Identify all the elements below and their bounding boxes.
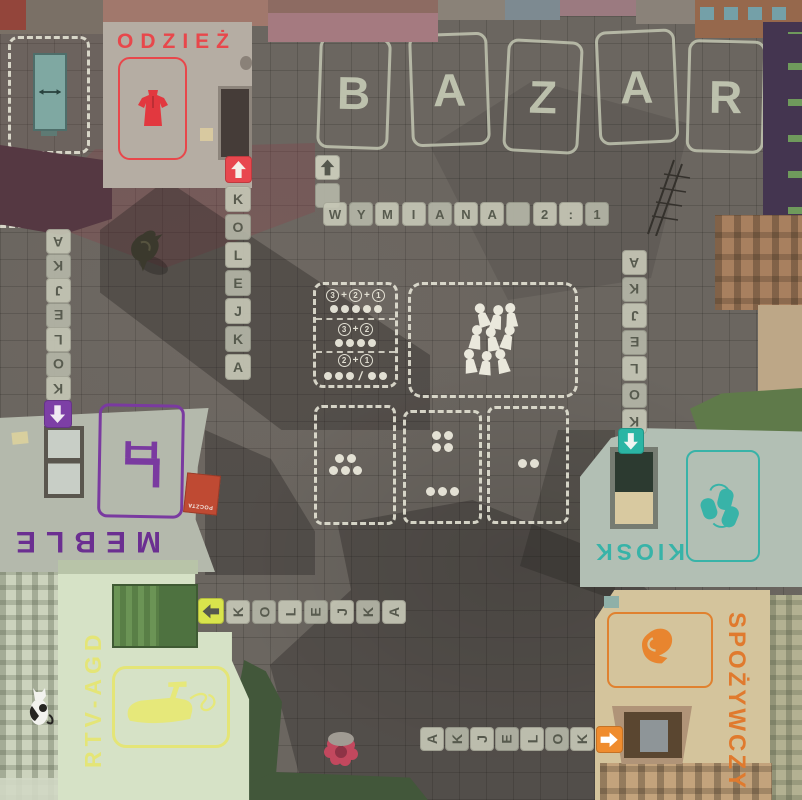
bazar-card: A — [408, 32, 491, 148]
queue-tile[interactable]: W — [323, 202, 347, 226]
wall-vent — [240, 56, 252, 70]
queue-tile[interactable]: A — [428, 202, 452, 226]
exchange-row: 3+2+1 — [316, 285, 395, 318]
cat-icon — [18, 682, 60, 732]
tile-letter: 2 — [541, 207, 548, 222]
queue-tile[interactable]: N — [454, 202, 478, 226]
tile-letter: K — [53, 381, 63, 397]
tile-letter: O — [233, 219, 244, 235]
tile-letter: J — [334, 608, 350, 616]
poczta-tile[interactable]: POCZTA — [183, 472, 221, 515]
tile-letter: E — [233, 275, 242, 291]
arrow-left-icon — [202, 602, 221, 620]
tile-letter: L — [54, 332, 63, 348]
queue-tile[interactable]: E — [495, 727, 519, 751]
tile-letter: 1 — [593, 207, 600, 222]
wardrobe-icon — [33, 53, 67, 131]
tile-letter: M — [382, 207, 393, 222]
dice-box[interactable] — [314, 405, 396, 525]
tile-letter: J — [474, 735, 490, 743]
bazar-card-letter: A — [432, 62, 466, 117]
tile-letter: O — [629, 387, 640, 403]
tile-letter: K — [449, 734, 465, 744]
tile-letter: J — [631, 308, 639, 324]
queue-tile[interactable]: J — [46, 278, 71, 303]
bazar-card: B — [316, 36, 392, 150]
queue-tile[interactable]: K — [570, 727, 594, 751]
chair-icon — [97, 403, 185, 518]
pip-cluster — [431, 429, 455, 453]
queue-tile[interactable]: K — [225, 326, 251, 352]
queue-tile[interactable]: J — [225, 298, 251, 324]
brick-windows — [700, 7, 796, 20]
fire-escape-ladder — [640, 158, 700, 236]
tile-letter: Y — [357, 207, 366, 222]
queue-tile[interactable]: A — [225, 354, 251, 380]
tile-letter: N — [461, 207, 470, 222]
queue-tile[interactable]: K — [225, 186, 251, 212]
spozywczy-door-glass — [640, 720, 668, 752]
rtv-roof-strip — [58, 560, 198, 574]
building-bottom-left — [0, 556, 62, 800]
bazar-card: Z — [502, 38, 584, 155]
blank-tile[interactable] — [506, 202, 530, 226]
queue-tile[interactable]: L — [520, 727, 544, 751]
exchange-rates-panel[interactable]: 3+2+13+22+1/ — [313, 282, 398, 388]
tile-letter: A — [435, 207, 444, 222]
queue-tile[interactable]: K — [226, 600, 250, 624]
tile-letter: O — [549, 734, 565, 745]
bazar-card-letter: B — [337, 66, 371, 121]
queue-tile[interactable]: M — [375, 202, 399, 226]
purple-building-window-slits — [788, 32, 802, 214]
shop-odziez-name: ODZIEŻ — [117, 30, 236, 54]
exchange-formula: 3+2 — [338, 323, 374, 336]
queue-tile[interactable]: Y — [349, 202, 373, 226]
buff-building-right — [758, 305, 802, 397]
queue-tile[interactable]: K — [445, 727, 469, 751]
tile-letter: I — [412, 207, 416, 222]
roof-strip-4 — [636, 0, 696, 24]
tile-letter: K — [233, 331, 243, 347]
queue-tile[interactable]: L — [622, 356, 647, 381]
exchange-formula: 3+2+1 — [326, 289, 385, 302]
shop-rtv-agd-name: RTV-AGD — [80, 578, 107, 768]
queue-pawn-area[interactable] — [408, 282, 578, 398]
pigeon-icon — [120, 228, 172, 290]
tile-letter: W — [329, 207, 341, 222]
odziez-entry-arrow[interactable] — [225, 156, 252, 183]
queue-tile[interactable]: L — [278, 600, 302, 624]
queue-people-icon — [457, 303, 537, 381]
queue-tile[interactable]: J — [330, 600, 354, 624]
queue-tile[interactable]: K — [356, 600, 380, 624]
doorbell-switch — [200, 128, 213, 141]
roof-red-corner — [0, 0, 26, 30]
tile-letter: A — [53, 234, 63, 250]
rooftop-vent — [11, 431, 28, 445]
kiosk-entry-arrow[interactable] — [618, 428, 644, 454]
queue-tile[interactable]: O — [622, 383, 647, 408]
arrow-down-icon — [48, 404, 67, 424]
tile-letter: A — [487, 207, 496, 222]
tile-letter: E — [308, 607, 324, 616]
tile-letter: A — [386, 607, 402, 617]
bazar-card-letter: A — [620, 60, 654, 115]
shop-odziez-door[interactable] — [218, 86, 252, 160]
roof-strip-2 — [268, 0, 438, 42]
tile-letter: E — [499, 734, 515, 743]
tile-letter: E — [54, 307, 63, 323]
pip-cluster — [516, 457, 540, 469]
tile-letter: K — [53, 258, 63, 274]
bazar_entry-entry-arrow[interactable] — [315, 155, 340, 180]
exchange-pips: / — [323, 369, 387, 383]
queue-tile[interactable]: A — [420, 727, 444, 751]
kiosk-booth-window — [610, 447, 658, 529]
tile-letter: L — [524, 735, 540, 744]
chicken-icon — [607, 612, 713, 688]
tile-letter: K — [574, 734, 590, 744]
tile-letter: O — [53, 356, 64, 372]
tile-letter: K — [230, 607, 246, 617]
queue-tile[interactable]: K — [46, 376, 71, 401]
wardrobe-foot — [41, 131, 57, 136]
bazar-card: A — [595, 28, 680, 145]
exchange-formula: 2+1 — [338, 354, 374, 367]
tile-letter: L — [630, 361, 639, 377]
queue-tile[interactable]: 2 — [533, 202, 557, 226]
bazar-card: R — [686, 39, 767, 154]
queue-tile[interactable]: A — [46, 229, 71, 254]
exchange-row: 3+2 — [316, 318, 395, 351]
iron-icon — [112, 666, 230, 748]
tile-letter: J — [55, 283, 63, 299]
arrow-down-icon — [622, 432, 640, 451]
queue-tile[interactable]: E — [304, 600, 328, 624]
building-right-pale — [770, 595, 802, 800]
shop-meble-name: MEBLE — [6, 524, 161, 558]
rtv_agd-entry-arrow[interactable] — [198, 598, 224, 624]
queue-tile[interactable]: J — [470, 727, 494, 751]
queue-tile[interactable]: A — [382, 600, 406, 624]
roof-strip-mauve — [560, 0, 636, 16]
tile-letter: : — [569, 207, 573, 222]
shop-meble-window — [44, 426, 84, 498]
rtv-awning — [112, 584, 198, 648]
queue-tile[interactable]: K — [46, 254, 71, 279]
dice-box[interactable] — [487, 406, 569, 524]
tile-letter: J — [234, 303, 242, 319]
meble-entry-arrow[interactable] — [44, 400, 72, 428]
arrow-up-icon — [229, 160, 247, 179]
queue-tile[interactable]: O — [545, 727, 569, 751]
spozywczy-roof-vent — [604, 596, 619, 608]
poczta-label: POCZTA — [188, 502, 214, 511]
exchange-pips — [329, 304, 383, 314]
pip-cluster — [328, 452, 364, 476]
kiosk-window-counter — [615, 492, 653, 524]
roof-strip-3 — [438, 0, 508, 20]
arrow-up-icon — [319, 159, 336, 177]
queue-tile[interactable]: L — [46, 327, 71, 352]
tile-letter: K — [233, 191, 243, 207]
bazar-card-letter: Z — [528, 69, 558, 124]
tile-letter: A — [233, 359, 243, 375]
spozywczy-entry-arrow[interactable] — [596, 726, 623, 753]
kiosk-window-dark — [615, 452, 653, 492]
queue-tile[interactable]: 1 — [585, 202, 609, 226]
tile-letter: A — [424, 734, 440, 744]
tile-letter: L — [282, 608, 298, 617]
game-board: 3+2+13+22+1/ — [0, 0, 802, 800]
queue-tile[interactable]: O — [46, 352, 71, 377]
queue-tile[interactable]: K — [622, 277, 647, 302]
tile-letter: L — [234, 247, 243, 263]
shop-spozywczy-name: SPOŻYWCZY — [722, 612, 750, 800]
flowers-icon — [318, 728, 364, 774]
queue-tile[interactable]: : — [559, 202, 583, 226]
queue-tile[interactable]: O — [252, 600, 276, 624]
dice-box[interactable] — [403, 410, 482, 524]
wardrobe-delivery-zone[interactable] — [8, 36, 90, 154]
dress-icon — [118, 57, 187, 160]
tile-letter: A — [629, 255, 639, 271]
roof-strip-blue — [505, 0, 560, 20]
queue-tile[interactable]: J — [622, 303, 647, 328]
bazar-card-letter: R — [709, 69, 743, 123]
newspapers-icon — [686, 450, 760, 562]
shop-kiosk-name: KIOSK — [592, 538, 685, 565]
queue-tile[interactable]: A — [480, 202, 504, 226]
queue-tile[interactable]: E — [46, 303, 71, 328]
queue-tile[interactable]: A — [622, 250, 647, 275]
tile-letter: K — [629, 281, 639, 297]
queue-tile[interactable]: E — [225, 270, 251, 296]
tile-letter: E — [630, 334, 639, 350]
queue-tile[interactable]: L — [225, 242, 251, 268]
queue-tile[interactable]: E — [622, 330, 647, 355]
tan-building-right — [715, 215, 802, 310]
pip-cluster — [425, 485, 461, 497]
exchange-row: 2+1/ — [316, 351, 395, 384]
arrow-right-icon — [600, 730, 619, 748]
queue-tile[interactable]: I — [402, 202, 426, 226]
tile-letter: O — [256, 607, 272, 618]
tile-letter: K — [360, 607, 376, 617]
queue-tile[interactable]: O — [225, 214, 251, 240]
exchange-pips — [334, 338, 377, 348]
